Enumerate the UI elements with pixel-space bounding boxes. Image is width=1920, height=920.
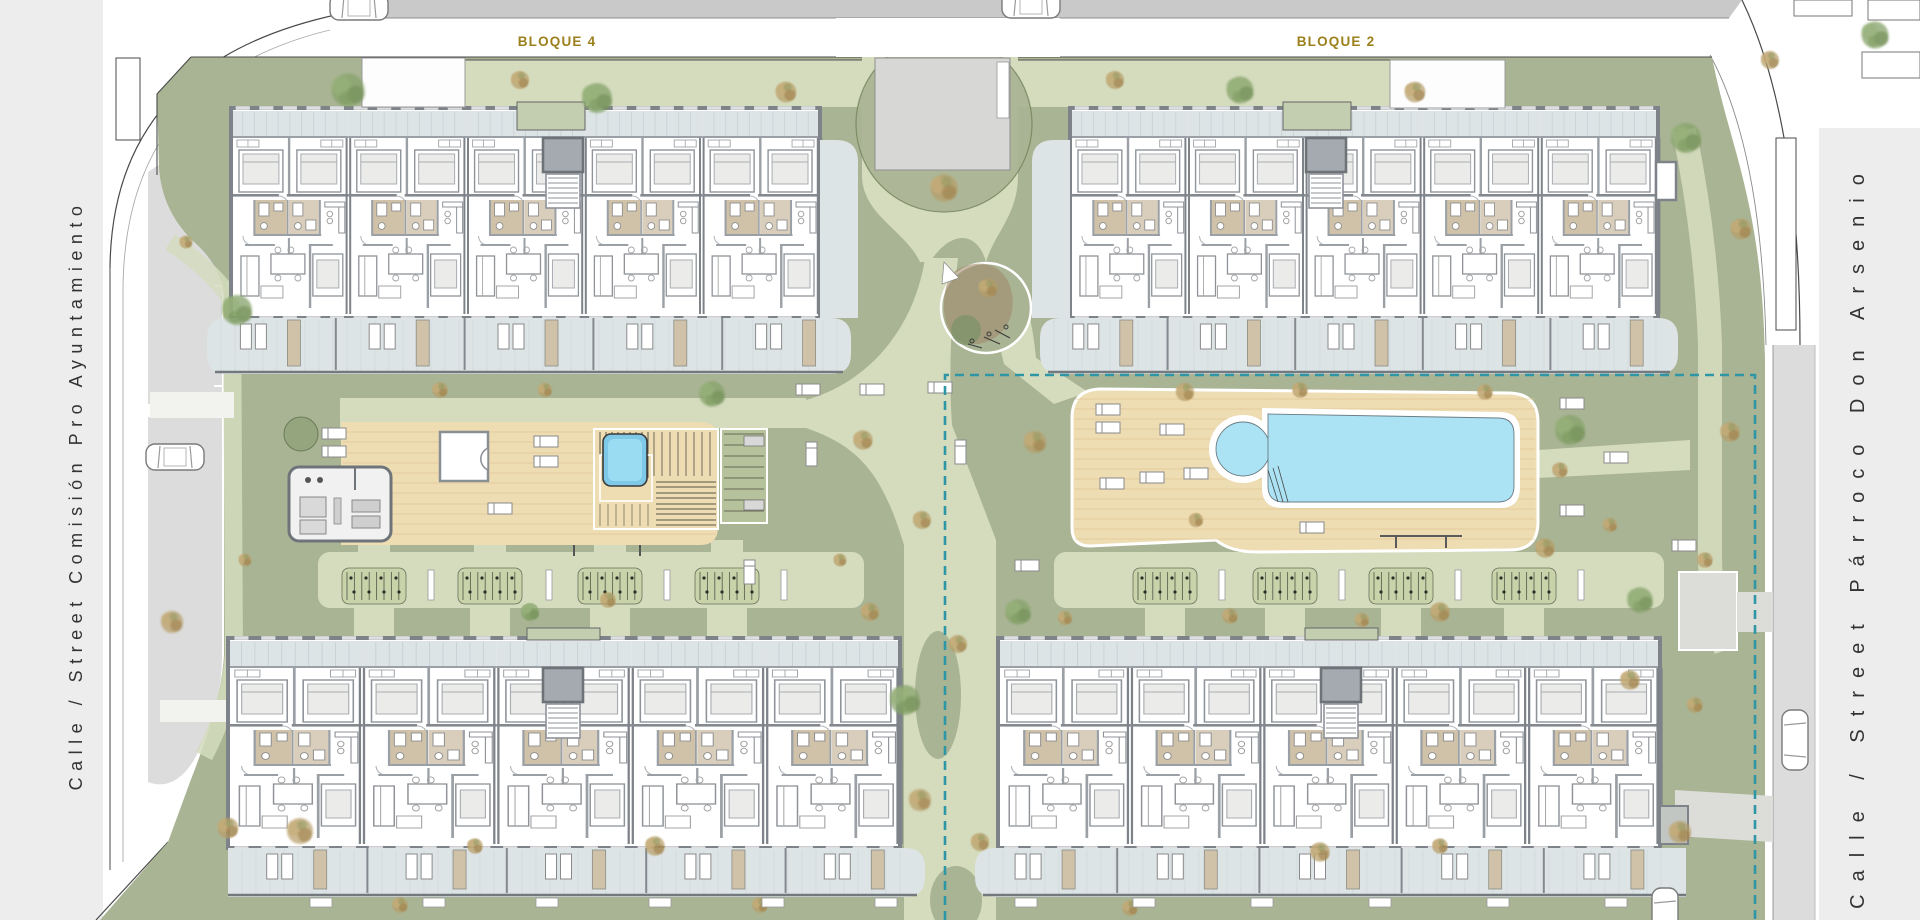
- svg-text:BLOQUE 2: BLOQUE 2: [1297, 34, 1376, 49]
- svg-text:Calle / Street Comisión Pro Ay: Calle / Street Comisión Pro Ayuntamiento: [66, 200, 86, 791]
- svg-text:Calle / Street Párroco Don Ars: Calle / Street Párroco Don Arsenio: [1847, 161, 1869, 909]
- svg-text:BLOQUE 4: BLOQUE 4: [518, 34, 597, 49]
